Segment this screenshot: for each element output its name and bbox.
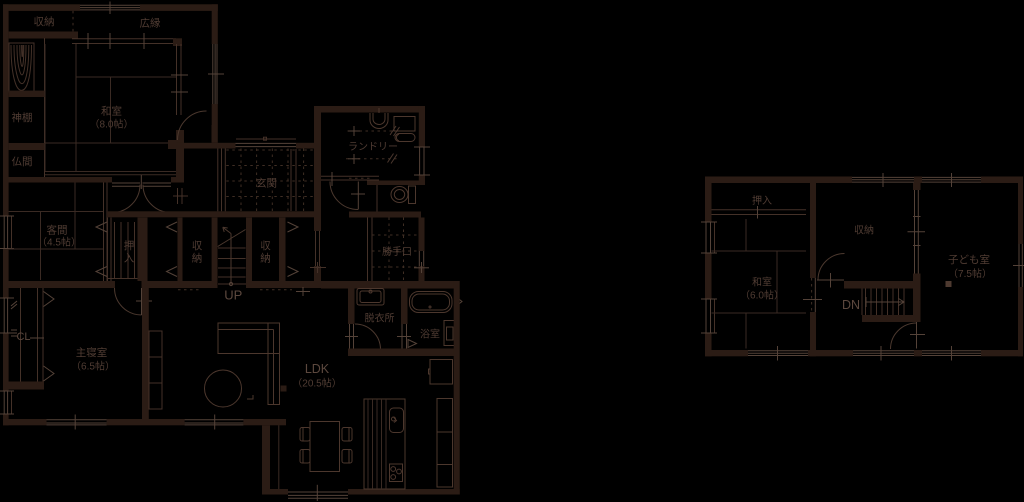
svg-text:UP: UP xyxy=(224,287,242,302)
svg-text:（8.0帖）: （8.0帖） xyxy=(90,118,134,131)
svg-text:収: 収 xyxy=(192,240,203,252)
svg-text:納: 納 xyxy=(192,252,203,265)
svg-text:子ども室: 子ども室 xyxy=(948,253,990,266)
svg-text:広縁: 広縁 xyxy=(140,17,161,30)
svg-text:ランドリー: ランドリー xyxy=(348,141,398,153)
svg-text:（7.5帖）: （7.5帖） xyxy=(948,267,992,280)
svg-text:和室: 和室 xyxy=(101,105,122,118)
svg-text:和室: 和室 xyxy=(752,276,772,289)
svg-text:LDK: LDK xyxy=(305,362,330,376)
svg-text:勝手口: 勝手口 xyxy=(382,245,412,258)
svg-text:客間: 客間 xyxy=(47,224,68,237)
svg-text:押入: 押入 xyxy=(752,194,772,207)
svg-text:仏間: 仏間 xyxy=(12,156,33,168)
svg-text:収納: 収納 xyxy=(854,224,874,237)
svg-text:（20.5帖）: （20.5帖） xyxy=(292,377,341,390)
svg-text:（4.5帖）: （4.5帖） xyxy=(37,236,81,249)
svg-text:神棚: 神棚 xyxy=(12,111,33,124)
svg-text:主寝室: 主寝室 xyxy=(76,346,108,359)
svg-text:玄関: 玄関 xyxy=(256,177,277,190)
svg-text:収納: 収納 xyxy=(34,15,55,28)
svg-text:DN: DN xyxy=(842,298,860,312)
svg-text:（6.5帖）: （6.5帖） xyxy=(71,360,115,373)
svg-text:CL: CL xyxy=(16,331,30,343)
svg-text:収: 収 xyxy=(260,240,271,252)
svg-text:浴室: 浴室 xyxy=(420,328,440,341)
svg-text:納: 納 xyxy=(260,252,271,265)
svg-text:押: 押 xyxy=(124,239,135,252)
svg-text:入: 入 xyxy=(124,253,135,265)
svg-text:脱衣所: 脱衣所 xyxy=(365,312,395,325)
svg-text:（6.0帖）: （6.0帖） xyxy=(740,289,784,302)
